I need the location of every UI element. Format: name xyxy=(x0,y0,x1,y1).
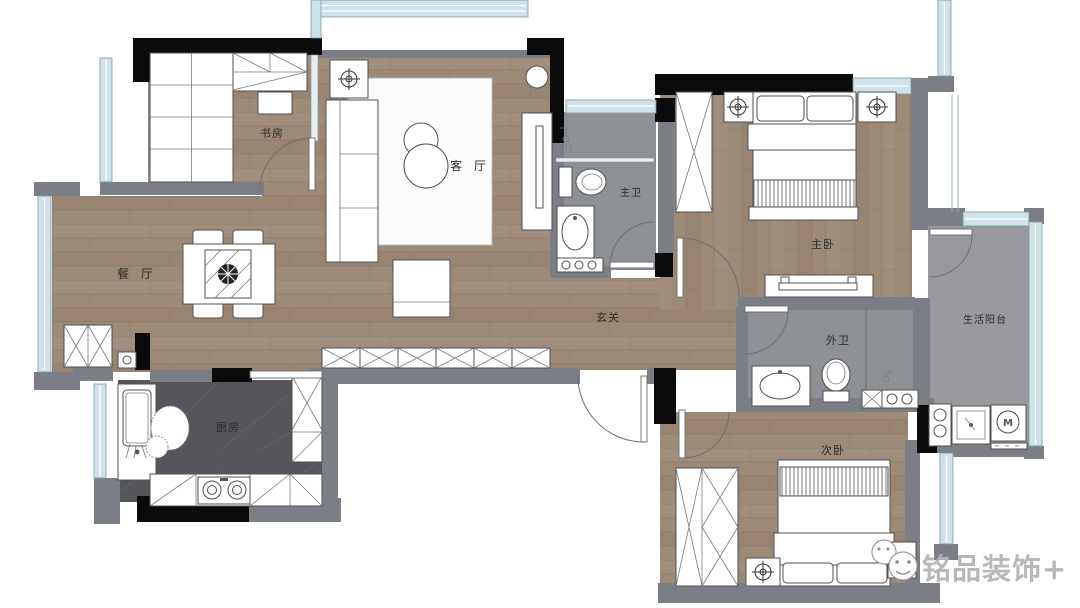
guest-basin xyxy=(760,373,800,399)
shoe-cabinet xyxy=(322,348,360,368)
watermark-text: 铭品装饰+ xyxy=(922,552,1067,586)
tv-screen xyxy=(536,126,543,208)
dining-small-unit xyxy=(118,352,136,368)
second-wardrobe xyxy=(676,468,738,586)
shoe-cabinet xyxy=(474,348,512,368)
sofa xyxy=(326,100,378,262)
bed-fold xyxy=(748,124,856,150)
guest-bath-door-leaf xyxy=(745,306,788,312)
corner-balcony-floor xyxy=(928,95,1028,213)
washing-machine-mark: M xyxy=(1003,418,1013,429)
label-master-bath: 主卫 xyxy=(620,187,642,199)
plant xyxy=(526,66,548,88)
entry-door-swing xyxy=(578,376,644,442)
shoe-cabinet xyxy=(512,348,550,368)
floorplan-canvas: M 书房 客 厅 餐 厅 厨房 玄关 主卫 主卧 外卫 生活阳台 次卧 铭品装饰… xyxy=(0,0,1080,608)
label-kitchen: 厨房 xyxy=(216,421,240,434)
guest-toilet xyxy=(822,359,850,391)
ottoman xyxy=(393,260,450,317)
gas-stove xyxy=(198,477,250,504)
label-study: 书房 xyxy=(260,127,284,140)
second-bed-blanket-stripes xyxy=(780,467,888,496)
kitchen-sink xyxy=(123,390,151,446)
bed-blanket-stripes xyxy=(753,180,856,207)
study-desk xyxy=(258,92,292,114)
bed-footboard xyxy=(749,207,858,220)
label-service-balcony: 生活阳台 xyxy=(963,313,1007,326)
balcony-door-leaf xyxy=(930,229,972,235)
shoe-cabinet xyxy=(360,348,398,368)
study-glass-partition xyxy=(311,55,318,141)
shoe-cabinet xyxy=(436,348,474,368)
pillow xyxy=(783,563,833,583)
study-door-leaf xyxy=(309,138,315,190)
fridge xyxy=(292,376,322,462)
kitchen-plant-sketch-small xyxy=(146,436,168,458)
pillow xyxy=(837,563,887,583)
label-second-bed: 次卧 xyxy=(821,443,845,457)
bedroom-tv xyxy=(779,283,857,290)
shoe-cabinet xyxy=(398,348,436,368)
master-bath-shower-glass xyxy=(556,158,654,162)
toilet xyxy=(576,169,606,195)
floorplan-svg: M 书房 客 厅 餐 厅 厨房 玄关 主卫 主卧 外卫 生活阳台 次卧 铭品装饰… xyxy=(0,0,1080,608)
kitchen-sliding-door xyxy=(250,371,322,378)
pillow xyxy=(807,96,853,121)
label-dining: 餐 厅 xyxy=(117,266,157,281)
living-balcony-side-window xyxy=(311,0,321,38)
master-bath-door-leaf xyxy=(610,262,654,268)
living-balcony-window xyxy=(318,0,528,17)
wechat-bubble-icon xyxy=(889,552,917,580)
label-hall: 玄关 xyxy=(596,310,620,324)
master-bedroom-door-leaf xyxy=(677,238,683,297)
label-guest-bath: 外卫 xyxy=(826,334,850,347)
coffee-table-large xyxy=(404,144,448,188)
entry-door-leaf xyxy=(641,376,647,442)
label-living: 客 厅 xyxy=(450,158,490,173)
label-master-bed: 主卧 xyxy=(811,238,835,251)
toilet-tank xyxy=(559,167,572,197)
second-bedroom-door-leaf xyxy=(679,410,685,458)
pillow xyxy=(757,96,804,121)
guest-toilet-tank xyxy=(823,391,849,402)
